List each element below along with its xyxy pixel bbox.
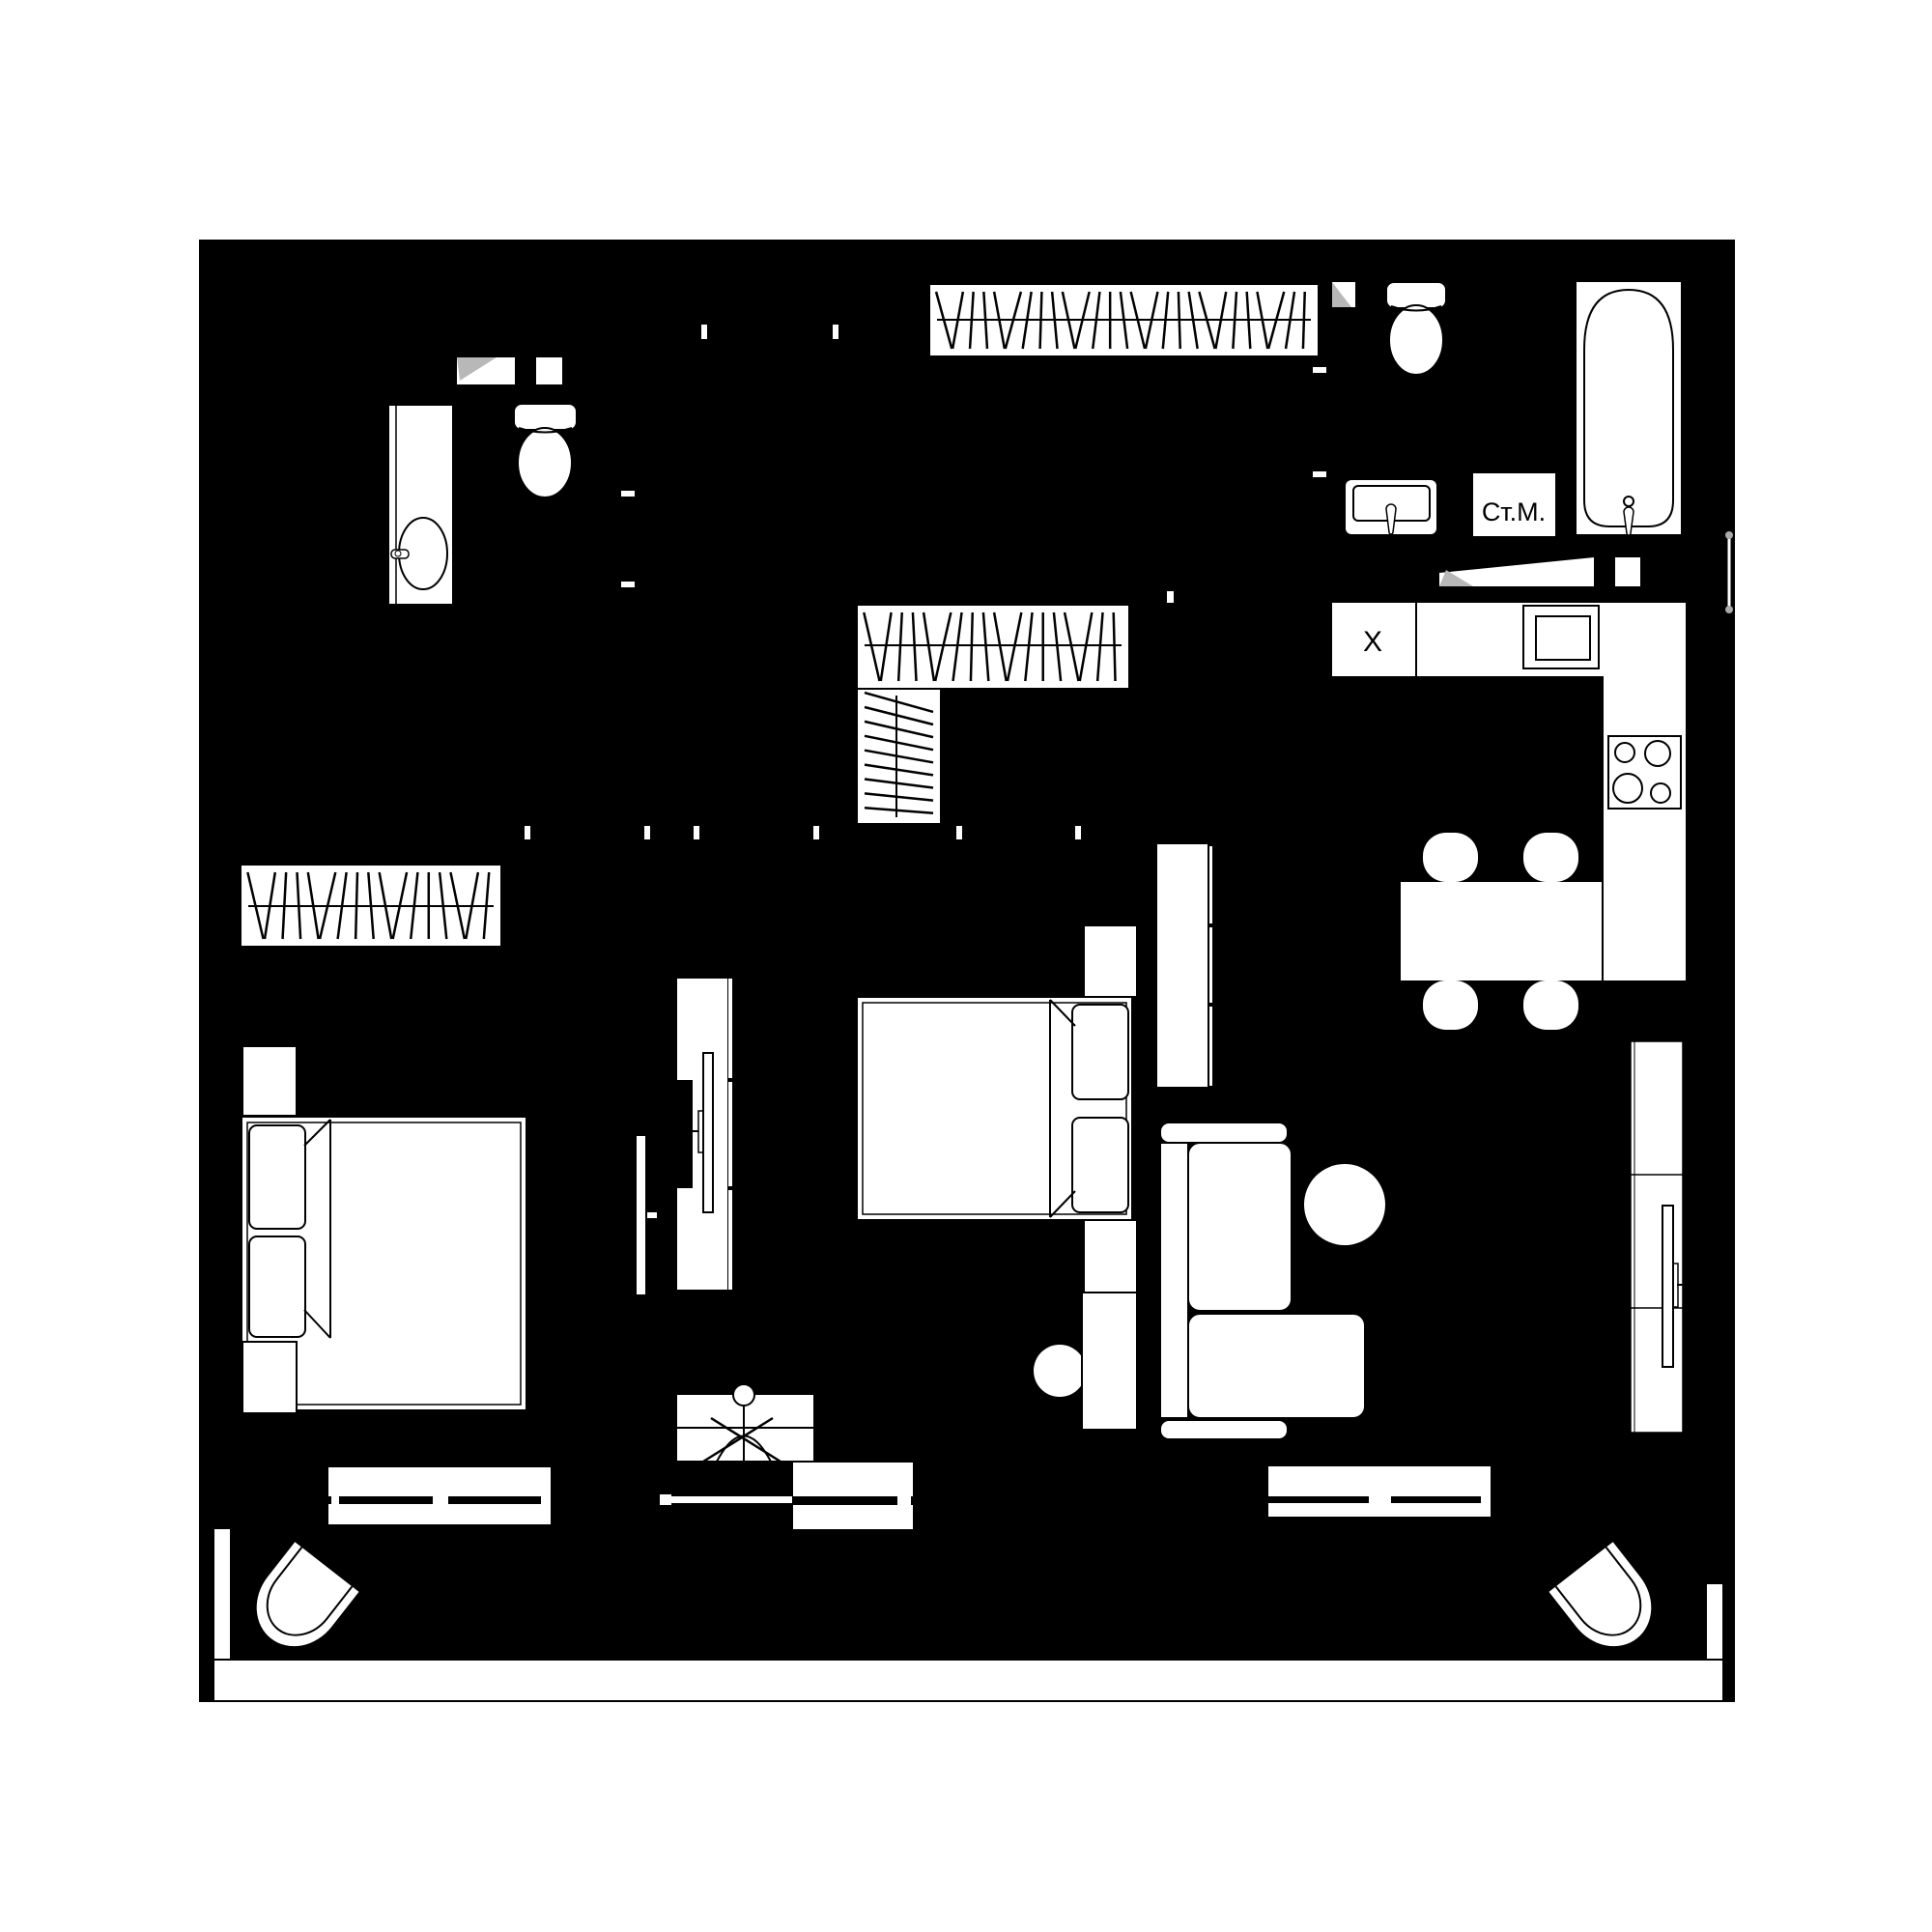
nightstand bbox=[1084, 925, 1137, 997]
dining-chair bbox=[1523, 980, 1578, 1030]
wall-tick bbox=[621, 491, 635, 497]
floor-lamp-icon bbox=[1034, 1345, 1086, 1397]
dining-chair bbox=[1523, 833, 1578, 882]
fridge-label: X bbox=[1363, 626, 1382, 658]
wall-tick bbox=[701, 325, 707, 339]
wall-tick bbox=[956, 826, 962, 839]
mirror-icon bbox=[733, 1384, 754, 1406]
radiator-pipe bbox=[660, 1496, 792, 1503]
nightstand bbox=[1084, 1220, 1137, 1293]
chest bbox=[1082, 1293, 1137, 1430]
tv-icon bbox=[703, 1053, 713, 1212]
bathtub-icon bbox=[1577, 282, 1681, 535]
wall-tick bbox=[833, 325, 838, 339]
toilet-icon bbox=[514, 404, 577, 497]
nightstand bbox=[242, 1046, 297, 1116]
wall-tick bbox=[813, 826, 819, 839]
sofa-chaise bbox=[1188, 1314, 1365, 1418]
pillow bbox=[1072, 1005, 1128, 1099]
wardrobe-top bbox=[930, 285, 1318, 355]
wall-tick bbox=[694, 826, 699, 839]
wall-tick bbox=[1167, 591, 1174, 603]
wall-tick bbox=[621, 582, 635, 587]
radiator-right bbox=[1268, 1466, 1491, 1517]
wall-tick bbox=[1313, 471, 1326, 477]
sofa-back bbox=[1160, 1143, 1188, 1418]
dining-chair bbox=[1423, 833, 1478, 882]
balcony-pillar bbox=[1707, 1584, 1722, 1659]
dining-chair bbox=[1423, 980, 1478, 1030]
cooktop-icon bbox=[1608, 736, 1681, 809]
wardrobe-left bbox=[241, 866, 500, 946]
dining-table bbox=[1401, 882, 1602, 980]
sofa-armrest bbox=[1160, 1122, 1288, 1143]
tv-icon bbox=[637, 1136, 645, 1294]
toilet-icon bbox=[1386, 282, 1446, 375]
sofa-armrest bbox=[1160, 1420, 1288, 1439]
entry-niche-block bbox=[1332, 282, 1355, 307]
wardrobe-center-vertical bbox=[858, 690, 940, 823]
wall-tick bbox=[1075, 826, 1081, 839]
vanity-sink-icon bbox=[389, 406, 452, 604]
tv-icon bbox=[1662, 1206, 1673, 1367]
floor-plan-page: Ст.М. X bbox=[0, 0, 1932, 1932]
nightstand bbox=[242, 1342, 297, 1413]
pillow bbox=[1072, 1118, 1128, 1212]
sofa-seat bbox=[1188, 1143, 1292, 1311]
washing-machine-label: Ст.М. bbox=[1482, 497, 1546, 526]
radiator-left bbox=[328, 1467, 551, 1524]
tall-cabinet bbox=[1157, 844, 1212, 1087]
bed-double bbox=[857, 997, 1132, 1220]
media-column bbox=[1631, 1041, 1683, 1433]
wall-tick bbox=[644, 826, 650, 839]
door-frame-block bbox=[536, 357, 562, 384]
pillow bbox=[249, 1125, 305, 1229]
bathroom-sink-icon bbox=[1346, 480, 1436, 534]
balcony-strip bbox=[214, 1661, 1722, 1700]
kitchen-sink-icon bbox=[1523, 606, 1599, 668]
balcony-pillar bbox=[214, 1529, 230, 1659]
tv-mount bbox=[647, 1212, 657, 1218]
wardrobe-center-horizontal bbox=[858, 606, 1128, 688]
floor-plan-svg: Ст.М. X bbox=[0, 0, 1932, 1932]
washing-machine-icon: Ст.М. bbox=[1473, 473, 1555, 536]
dressing-table bbox=[676, 1384, 814, 1462]
door-frame-block bbox=[1615, 557, 1640, 586]
pillow bbox=[249, 1236, 305, 1337]
coffee-table-round bbox=[1304, 1164, 1385, 1245]
wall-tick bbox=[525, 826, 530, 839]
wall-tick bbox=[1313, 367, 1326, 373]
